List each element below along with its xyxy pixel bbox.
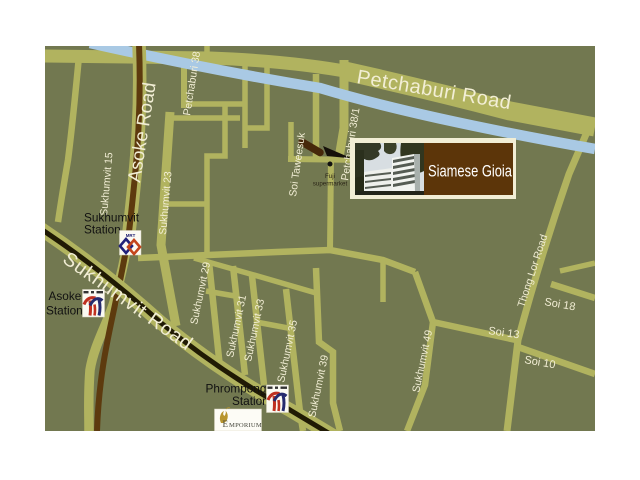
svg-text:MRT: MRT <box>126 233 136 238</box>
svg-text:Station: Station <box>232 394 269 408</box>
svg-text:supermarket: supermarket <box>313 181 348 188</box>
svg-text:Station: Station <box>84 223 121 237</box>
svg-text:E: E <box>223 419 229 429</box>
svg-text:MPORIUM: MPORIUM <box>229 422 262 429</box>
svg-text:Asoke: Asoke <box>49 289 82 303</box>
svg-text:Station: Station <box>46 304 83 318</box>
svg-text:Siamese Gioia: Siamese Gioia <box>428 163 513 181</box>
svg-text:Fuji: Fuji <box>325 173 335 180</box>
